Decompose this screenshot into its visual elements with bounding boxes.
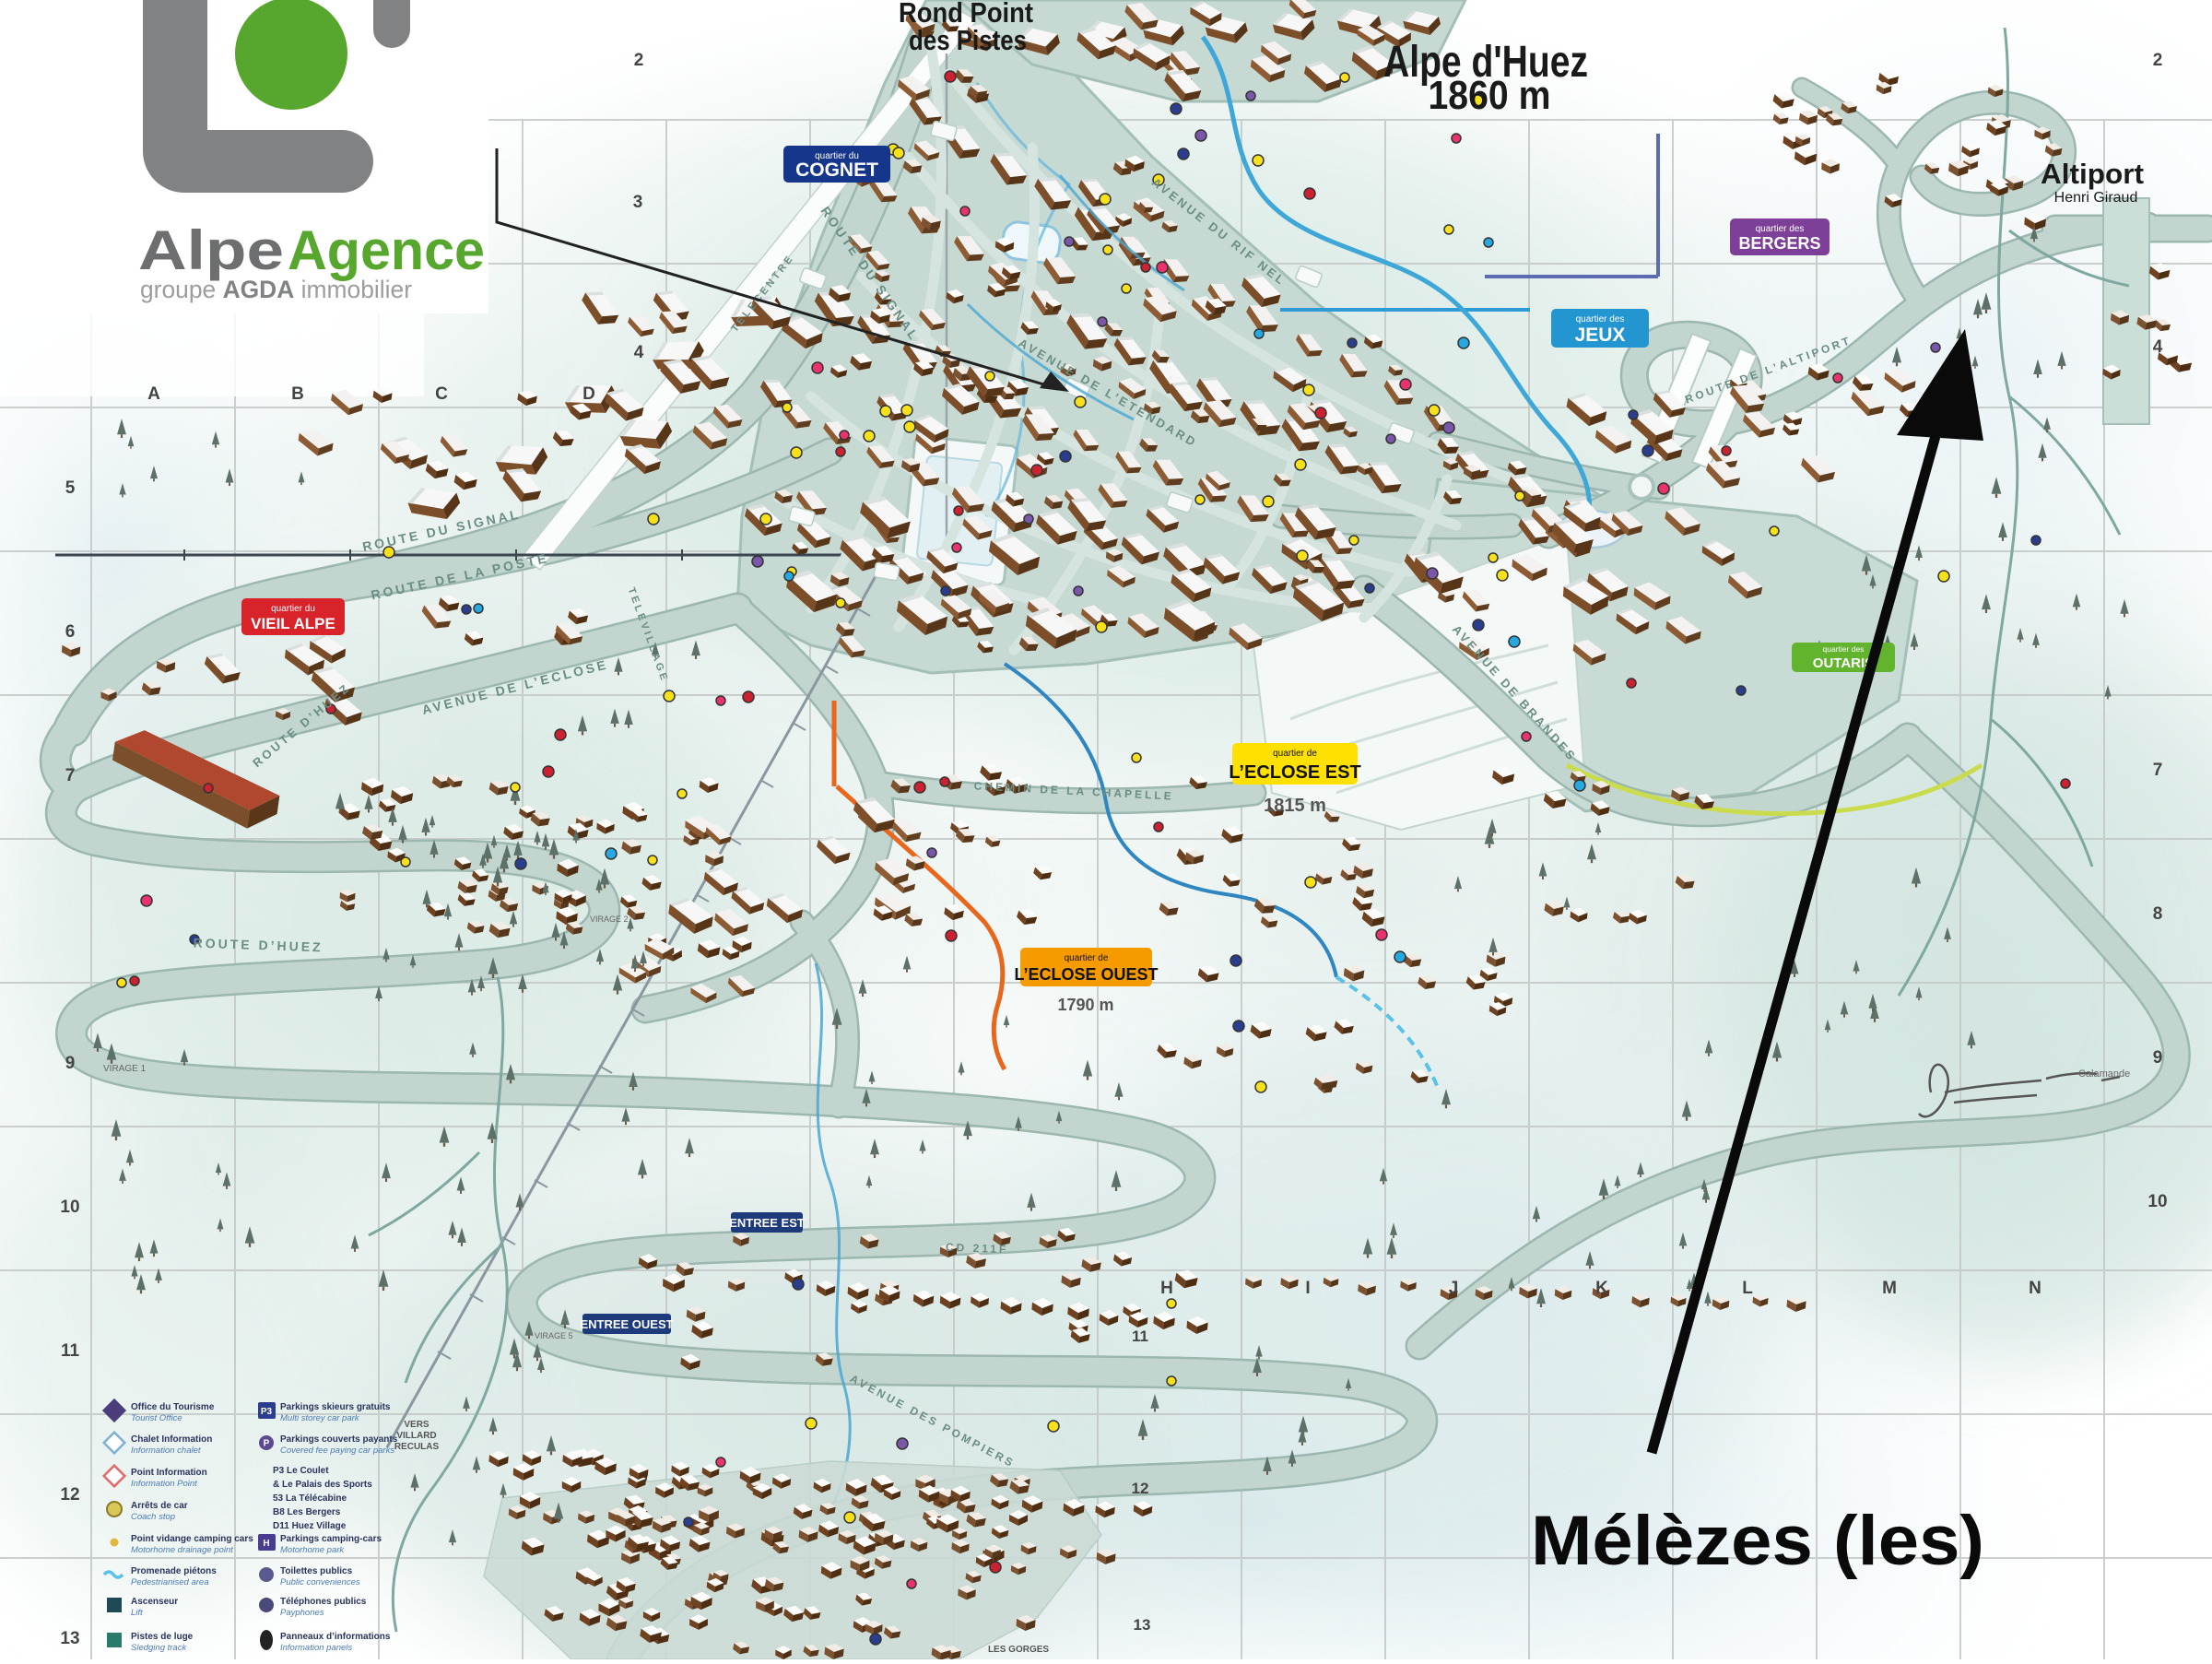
svg-text:M: M	[1882, 1279, 1897, 1298]
svg-text:VIRAGE 5: VIRAGE 5	[535, 1331, 573, 1340]
svg-text:OUTARIS: OUTARIS	[1813, 655, 1874, 671]
svg-text:JEUX: JEUX	[1575, 325, 1626, 346]
svg-text:1815 m: 1815 m	[1264, 796, 1326, 816]
svg-text:H: H	[263, 1539, 269, 1549]
svg-text:4: 4	[634, 343, 644, 362]
svg-text:Payphones: Payphones	[280, 1608, 324, 1618]
svg-text:VIRAGE 1: VIRAGE 1	[103, 1064, 147, 1074]
svg-text:& Le Palais des Sports: & Le Palais des Sports	[273, 1480, 372, 1490]
svg-text:H: H	[1160, 1279, 1173, 1298]
svg-text:BERGERS: BERGERS	[1738, 234, 1820, 253]
svg-text:1860 m: 1860 m	[1429, 73, 1551, 118]
svg-text:Altiport: Altiport	[2041, 158, 2144, 190]
svg-text:quartier des: quartier des	[1823, 644, 1865, 654]
svg-text:Point vidange camping cars: Point vidange camping cars	[131, 1534, 253, 1544]
svg-text:Pistes de luge: Pistes de luge	[131, 1632, 194, 1642]
svg-text:Coach stop: Coach stop	[131, 1512, 175, 1522]
svg-text:Parkings skieurs gratuits: Parkings skieurs gratuits	[280, 1402, 391, 1412]
svg-text:N: N	[2029, 1279, 2041, 1298]
svg-text:P: P	[264, 1439, 270, 1449]
svg-text:VERS: VERS	[404, 1420, 429, 1430]
svg-text:Henri Giraud: Henri Giraud	[2054, 190, 2138, 206]
svg-text:Alpe: Alpe	[138, 219, 284, 281]
svg-text:Motorhome drainage point: Motorhome drainage point	[131, 1545, 233, 1555]
svg-text:quartier des: quartier des	[1756, 224, 1805, 234]
svg-text:10: 10	[2147, 1192, 2167, 1211]
svg-text:D: D	[582, 384, 595, 404]
svg-text:B: B	[291, 384, 304, 404]
svg-text:Agence: Agence	[288, 219, 485, 281]
svg-text:Point Information: Point Information	[131, 1468, 207, 1478]
svg-text:13: 13	[1134, 1616, 1151, 1634]
svg-text:VIRAGE 2: VIRAGE 2	[590, 915, 629, 924]
svg-text:VIEIL ALPE: VIEIL ALPE	[251, 615, 335, 632]
svg-text:12: 12	[60, 1485, 79, 1505]
svg-text:Toilettes publics: Toilettes publics	[280, 1566, 353, 1576]
svg-text:Panneaux d’informations: Panneaux d’informations	[280, 1632, 391, 1642]
svg-text:7: 7	[2153, 761, 2163, 780]
svg-text:Office du Tourisme: Office du Tourisme	[131, 1402, 215, 1412]
svg-text:ENTREE EST: ENTREE EST	[729, 1216, 805, 1230]
svg-text:quartier de: quartier de	[1065, 953, 1109, 963]
svg-text:6: 6	[65, 622, 76, 642]
svg-text:C: C	[435, 384, 448, 404]
svg-text:2: 2	[634, 51, 644, 70]
svg-text:RECULAS: RECULAS	[394, 1442, 440, 1452]
svg-text:9: 9	[2153, 1048, 2163, 1068]
svg-text:13: 13	[60, 1629, 79, 1648]
svg-text:5: 5	[65, 478, 76, 498]
svg-text:2: 2	[2153, 51, 2163, 70]
svg-text:Téléphones publics: Téléphones publics	[280, 1597, 367, 1607]
svg-text:53 La Télécabine: 53 La Télécabine	[273, 1493, 347, 1504]
svg-text:Pedestrianised area: Pedestrianised area	[131, 1577, 209, 1587]
svg-text:11: 11	[1132, 1328, 1148, 1345]
svg-text:quartier du: quartier du	[271, 604, 315, 614]
svg-text:P3: P3	[261, 1407, 273, 1417]
svg-text:L: L	[1742, 1279, 1753, 1298]
svg-text:Parkings camping-cars: Parkings camping-cars	[280, 1534, 382, 1544]
svg-text:10: 10	[60, 1198, 79, 1217]
svg-text:1790 m: 1790 m	[1057, 996, 1113, 1014]
svg-text:B8 Les Bergers: B8 Les Bergers	[273, 1507, 341, 1517]
svg-text:Arrêts de car: Arrêts de car	[131, 1501, 188, 1511]
svg-text:Mélèzes (les): Mélèzes (les)	[1531, 1502, 1984, 1580]
svg-text:P3 Le Coulet: P3 Le Coulet	[273, 1466, 329, 1476]
svg-text:Calamande: Calamande	[2078, 1068, 2130, 1080]
svg-text:9: 9	[65, 1054, 76, 1073]
svg-text:VILLARD: VILLARD	[396, 1431, 436, 1441]
svg-text:Parkings couverts payants: Parkings couverts payants	[280, 1434, 398, 1445]
svg-text:quartier des: quartier des	[1576, 314, 1625, 325]
svg-text:Promenade piétons: Promenade piétons	[131, 1566, 217, 1576]
svg-text:Chalet Information: Chalet Information	[131, 1434, 212, 1445]
svg-text:L’ECLOSE OUEST: L’ECLOSE OUEST	[1014, 965, 1158, 984]
svg-text:des Pistes: des Pistes	[909, 24, 1027, 56]
svg-text:groupe AGDA immobilier: groupe AGDA immobilier	[140, 276, 412, 303]
svg-text:I: I	[1305, 1279, 1310, 1298]
svg-text:K: K	[1595, 1279, 1608, 1298]
svg-text:Public conveniences: Public conveniences	[280, 1577, 360, 1587]
svg-text:8: 8	[2153, 904, 2163, 924]
svg-text:11: 11	[61, 1341, 80, 1361]
svg-text:ENTREE OUEST: ENTREE OUEST	[580, 1317, 673, 1331]
svg-text:Information chalet: Information chalet	[131, 1446, 201, 1456]
svg-text:LES GORGES: LES GORGES	[988, 1645, 1049, 1655]
svg-text:Ascenseur: Ascenseur	[131, 1597, 178, 1607]
svg-text:7: 7	[65, 766, 76, 785]
svg-text:J: J	[1449, 1279, 1459, 1298]
svg-text:Tourist Office: Tourist Office	[131, 1413, 182, 1423]
svg-text:L’ECLOSE EST: L’ECLOSE EST	[1229, 762, 1360, 783]
svg-text:Covered fee paying car parks: Covered fee paying car parks	[280, 1446, 394, 1456]
svg-text:D11 Huez Village: D11 Huez Village	[273, 1521, 347, 1531]
svg-text:4: 4	[2153, 337, 2163, 357]
svg-text:Sledging track: Sledging track	[131, 1643, 187, 1653]
svg-text:CD 211F: CD 211F	[946, 1241, 1009, 1256]
svg-text:A: A	[147, 384, 160, 404]
svg-text:Information panels: Information panels	[280, 1643, 352, 1653]
svg-text:quartier de: quartier de	[1273, 749, 1317, 759]
svg-text:COGNET: COGNET	[795, 159, 878, 181]
svg-text:3: 3	[633, 193, 643, 212]
svg-text:Multi storey car park: Multi storey car park	[280, 1413, 360, 1423]
svg-text:Lift: Lift	[131, 1608, 143, 1618]
svg-text:Information Point: Information Point	[131, 1479, 197, 1489]
svg-text:Motorhome park: Motorhome park	[280, 1545, 345, 1555]
svg-text:12: 12	[1132, 1480, 1149, 1497]
